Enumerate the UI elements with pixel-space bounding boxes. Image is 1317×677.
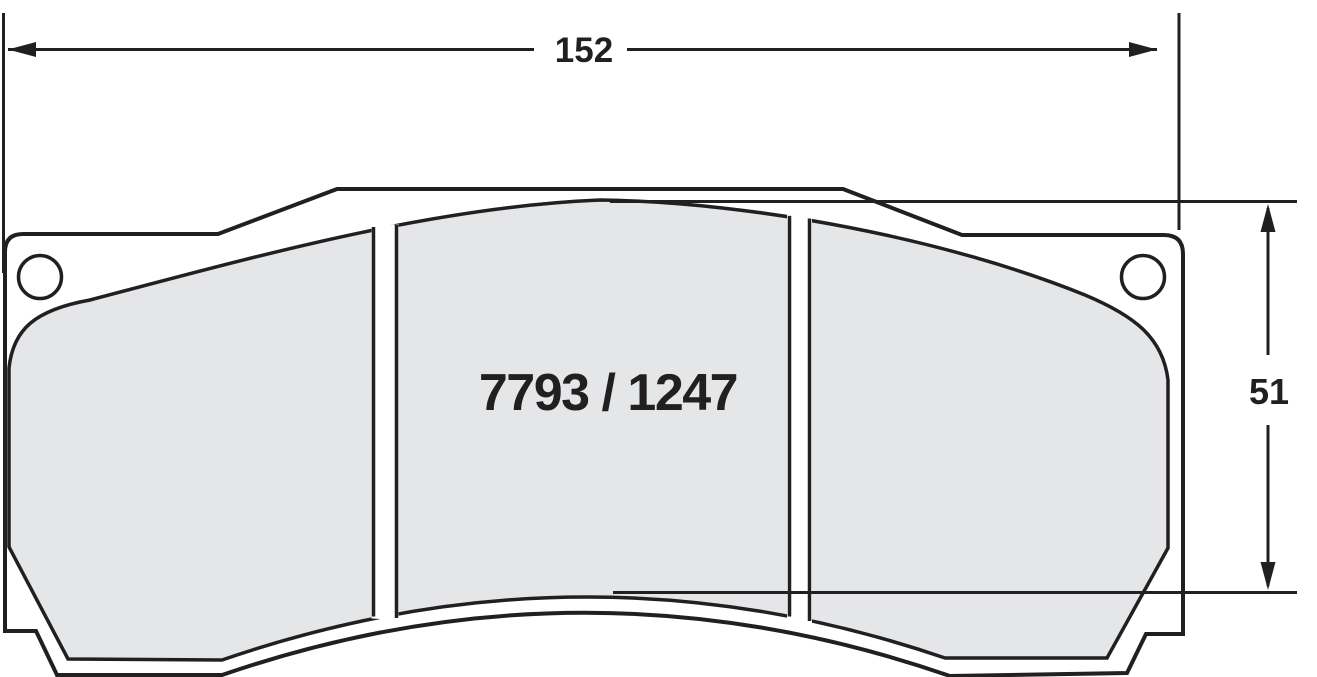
- arrow-up-icon: [1261, 204, 1276, 232]
- height-dimension-label: 51: [1249, 371, 1289, 412]
- mounting-hole-left: [19, 256, 62, 299]
- arrow-down-icon: [1261, 562, 1276, 590]
- slot-right: [787, 215, 812, 623]
- slot-left: [372, 224, 399, 620]
- arrow-left-icon: [8, 42, 36, 57]
- brake-pad-drawing: 152 51 7793 / 1247: [0, 0, 1317, 677]
- arrow-right-icon: [1129, 42, 1157, 57]
- width-dimension-label: 152: [555, 31, 613, 70]
- mounting-hole-right: [1122, 256, 1165, 299]
- part-number-label: 7793 / 1247: [479, 364, 737, 422]
